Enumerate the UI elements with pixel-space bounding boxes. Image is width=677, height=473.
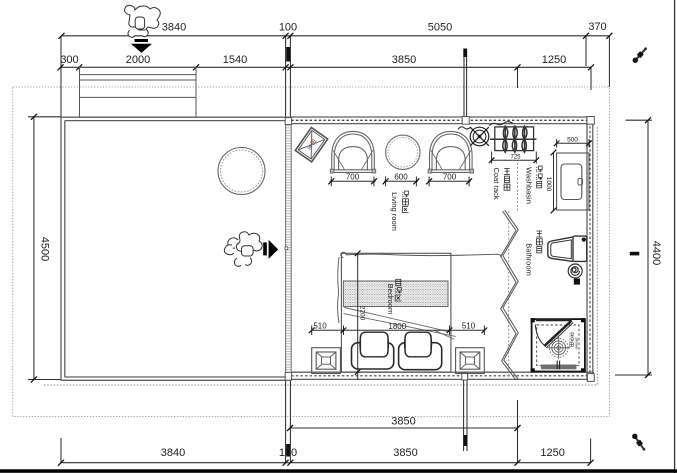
svg-text:3850: 3850 <box>392 54 416 66</box>
svg-text:700: 700 <box>346 173 360 182</box>
svg-text:100: 100 <box>279 22 297 34</box>
svg-text:600: 600 <box>394 173 408 182</box>
svg-text:Bathroom: Bathroom <box>524 243 533 276</box>
svg-text:1540: 1540 <box>223 54 247 66</box>
svg-text:Coat rack: Coat rack <box>492 167 501 199</box>
svg-text:700: 700 <box>443 173 457 182</box>
svg-text:3840: 3840 <box>161 447 185 459</box>
svg-text:100: 100 <box>279 447 297 459</box>
svg-text:Bedroom: Bedroom <box>386 284 395 314</box>
svg-text:300: 300 <box>60 54 78 66</box>
svg-text:725: 725 <box>510 155 521 161</box>
svg-text:4500: 4500 <box>39 237 51 261</box>
svg-text:3850: 3850 <box>393 447 417 459</box>
svg-text:1250: 1250 <box>542 54 566 66</box>
svg-text:500: 500 <box>567 136 578 143</box>
svg-text:Living room: Living room <box>390 192 399 231</box>
svg-text:2000: 2000 <box>126 54 150 66</box>
svg-text:Washbasin: Washbasin <box>524 167 533 204</box>
svg-text:1800: 1800 <box>388 322 406 331</box>
svg-text:370: 370 <box>588 21 606 33</box>
svg-text:5050: 5050 <box>428 22 452 34</box>
svg-text:1250: 1250 <box>540 447 564 459</box>
svg-text:2200: 2200 <box>359 306 366 321</box>
svg-text:4400: 4400 <box>650 241 662 265</box>
svg-text:510: 510 <box>313 321 327 330</box>
svg-text:1000: 1000 <box>545 177 552 192</box>
svg-text:Shower: Shower <box>574 337 578 350</box>
svg-text:3840: 3840 <box>162 22 186 34</box>
svg-text:510: 510 <box>462 321 476 330</box>
svg-text:3850: 3850 <box>391 415 415 427</box>
